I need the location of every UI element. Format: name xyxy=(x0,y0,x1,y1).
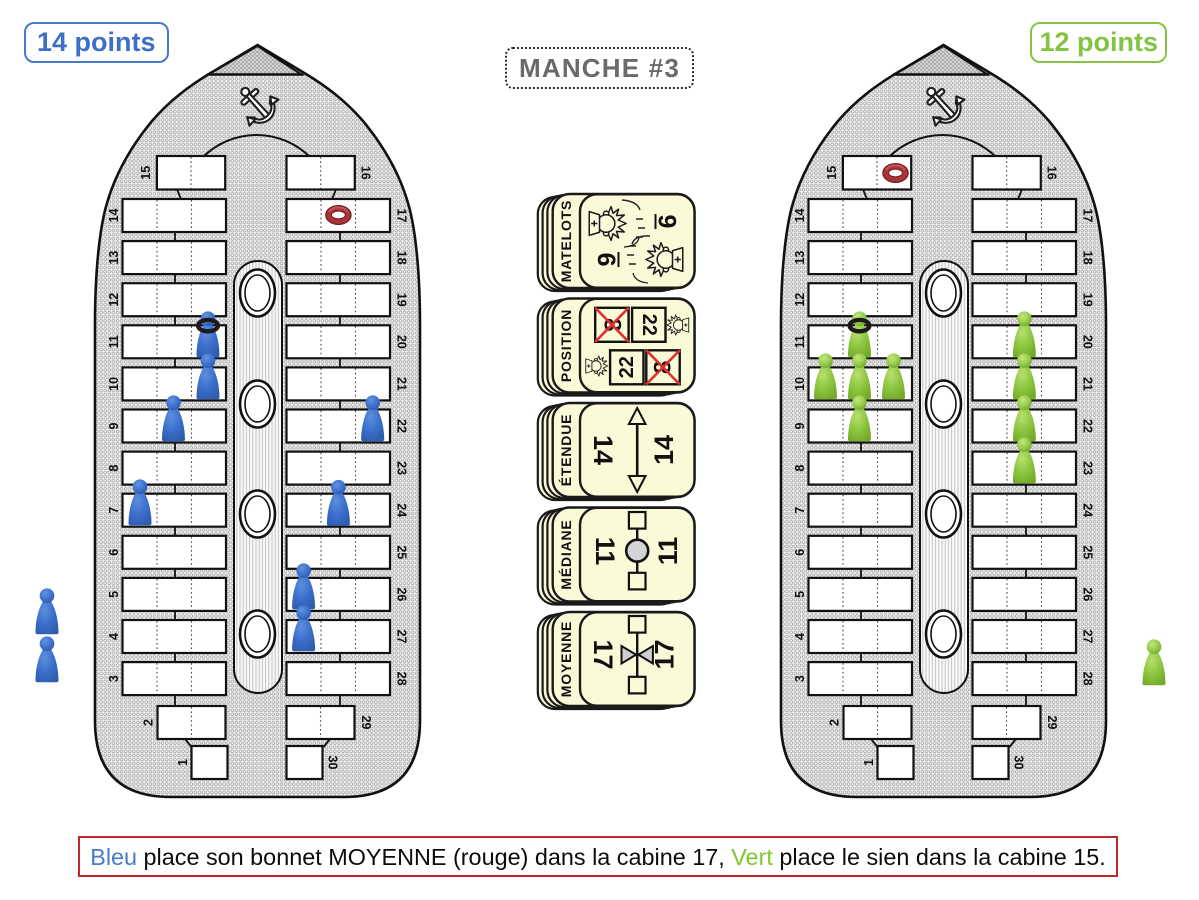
svg-text:20: 20 xyxy=(1081,335,1095,349)
svg-text:25: 25 xyxy=(1081,545,1095,559)
svg-text:12: 12 xyxy=(107,293,121,307)
svg-text:7: 7 xyxy=(793,507,807,514)
svg-text:1: 1 xyxy=(176,759,190,766)
svg-text:9: 9 xyxy=(653,215,681,229)
svg-text:28: 28 xyxy=(395,672,409,686)
svg-text:12: 12 xyxy=(793,293,807,307)
svg-text:14: 14 xyxy=(649,435,679,465)
svg-text:11: 11 xyxy=(590,537,620,566)
svg-text:17: 17 xyxy=(395,209,409,223)
svg-text:9: 9 xyxy=(793,422,807,429)
svg-text:6: 6 xyxy=(107,549,121,556)
svg-text:11: 11 xyxy=(793,335,807,348)
svg-text:18: 18 xyxy=(395,251,409,265)
svg-text:4: 4 xyxy=(793,633,807,640)
svg-text:17: 17 xyxy=(650,639,680,669)
svg-text:25: 25 xyxy=(395,545,409,559)
svg-text:26: 26 xyxy=(395,587,409,601)
svg-text:3: 3 xyxy=(107,675,121,682)
svg-text:8: 8 xyxy=(107,465,121,472)
svg-text:MÉDIANE: MÉDIANE xyxy=(558,519,574,589)
svg-text:9: 9 xyxy=(594,253,622,267)
svg-text:ÉTENDUE: ÉTENDUE xyxy=(558,414,574,487)
svg-text:18: 18 xyxy=(1081,251,1095,265)
svg-text:11: 11 xyxy=(107,335,121,348)
svg-text:19: 19 xyxy=(1081,293,1095,307)
svg-text:30: 30 xyxy=(326,756,340,770)
svg-text:22: 22 xyxy=(1081,419,1095,433)
svg-text:20: 20 xyxy=(395,335,409,349)
svg-text:30: 30 xyxy=(1012,756,1026,770)
svg-text:17: 17 xyxy=(1081,209,1095,223)
svg-text:2: 2 xyxy=(142,719,156,726)
svg-text:16: 16 xyxy=(1045,166,1059,180)
svg-text:15: 15 xyxy=(825,166,839,180)
svg-text:10: 10 xyxy=(793,377,807,391)
svg-text:5: 5 xyxy=(107,591,121,598)
svg-text:29: 29 xyxy=(1045,716,1059,730)
svg-text:5: 5 xyxy=(793,591,807,598)
svg-text:27: 27 xyxy=(395,630,409,644)
svg-text:26: 26 xyxy=(1081,587,1095,601)
svg-text:8: 8 xyxy=(793,465,807,472)
svg-text:16: 16 xyxy=(359,166,373,180)
svg-text:13: 13 xyxy=(793,251,807,265)
svg-text:15: 15 xyxy=(139,166,153,180)
svg-text:23: 23 xyxy=(395,461,409,475)
svg-text:22: 22 xyxy=(638,314,660,336)
svg-text:POSITION: POSITION xyxy=(558,309,574,382)
svg-text:6: 6 xyxy=(793,549,807,556)
svg-text:MOYENNE: MOYENNE xyxy=(558,621,574,697)
svg-text:28: 28 xyxy=(1081,672,1095,686)
svg-text:1: 1 xyxy=(862,759,876,766)
svg-text:27: 27 xyxy=(1081,630,1095,644)
svg-text:24: 24 xyxy=(395,503,409,517)
svg-text:17: 17 xyxy=(588,639,618,669)
svg-text:29: 29 xyxy=(359,716,373,730)
svg-text:22: 22 xyxy=(395,419,409,433)
svg-text:2: 2 xyxy=(828,719,842,726)
svg-text:24: 24 xyxy=(1081,503,1095,517)
svg-text:19: 19 xyxy=(395,293,409,307)
svg-text:10: 10 xyxy=(107,377,121,391)
svg-text:3: 3 xyxy=(793,675,807,682)
svg-text:14: 14 xyxy=(107,209,121,223)
svg-text:11: 11 xyxy=(653,537,683,566)
svg-text:4: 4 xyxy=(107,633,121,640)
svg-text:23: 23 xyxy=(1081,461,1095,475)
svg-text:21: 21 xyxy=(395,377,409,391)
svg-text:21: 21 xyxy=(1081,377,1095,391)
svg-text:13: 13 xyxy=(107,251,121,265)
svg-text:14: 14 xyxy=(588,435,618,465)
svg-text:MATELOTS: MATELOTS xyxy=(558,200,574,282)
svg-text:7: 7 xyxy=(107,507,121,514)
svg-text:22: 22 xyxy=(616,356,638,378)
svg-text:14: 14 xyxy=(793,209,807,223)
svg-text:9: 9 xyxy=(107,422,121,429)
